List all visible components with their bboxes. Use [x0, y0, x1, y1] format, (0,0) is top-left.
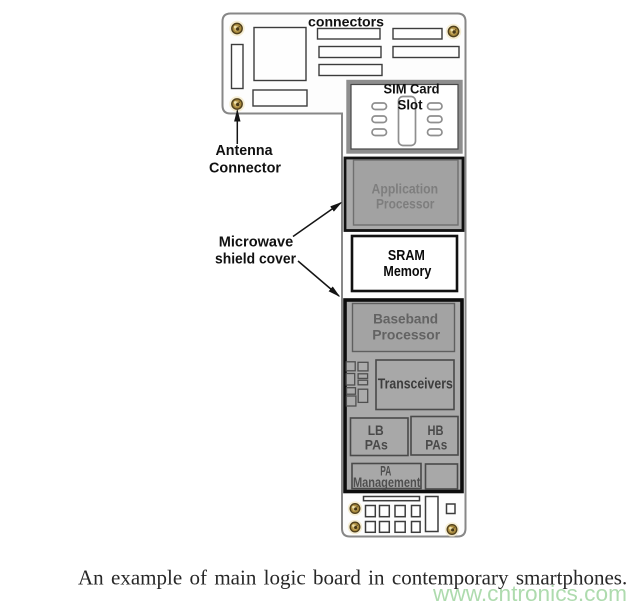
- svg-text:Antenna: Antenna: [216, 143, 274, 159]
- svg-text:Slot: Slot: [398, 98, 423, 113]
- svg-text:An example of main logic board: An example of main logic board in contem…: [78, 566, 627, 590]
- svg-text:SRAM: SRAM: [388, 247, 425, 264]
- svg-text:Application: Application: [372, 181, 439, 197]
- svg-text:PAs: PAs: [365, 437, 388, 453]
- svg-text:Baseband: Baseband: [373, 311, 438, 327]
- svg-text:PAs: PAs: [425, 437, 447, 453]
- svg-text:Transceivers: Transceivers: [378, 375, 453, 392]
- svg-text:Memory: Memory: [383, 263, 432, 280]
- svg-text:Management: Management: [353, 474, 421, 490]
- svg-text:Processor: Processor: [376, 196, 435, 212]
- svg-text:Connector: Connector: [209, 161, 281, 177]
- svg-text:shield cover: shield cover: [215, 252, 296, 268]
- svg-text:Processor: Processor: [372, 327, 441, 343]
- svg-text:Microwave: Microwave: [219, 235, 294, 251]
- svg-text:connectors: connectors: [308, 15, 384, 30]
- svg-text:SIM Card: SIM Card: [384, 82, 440, 97]
